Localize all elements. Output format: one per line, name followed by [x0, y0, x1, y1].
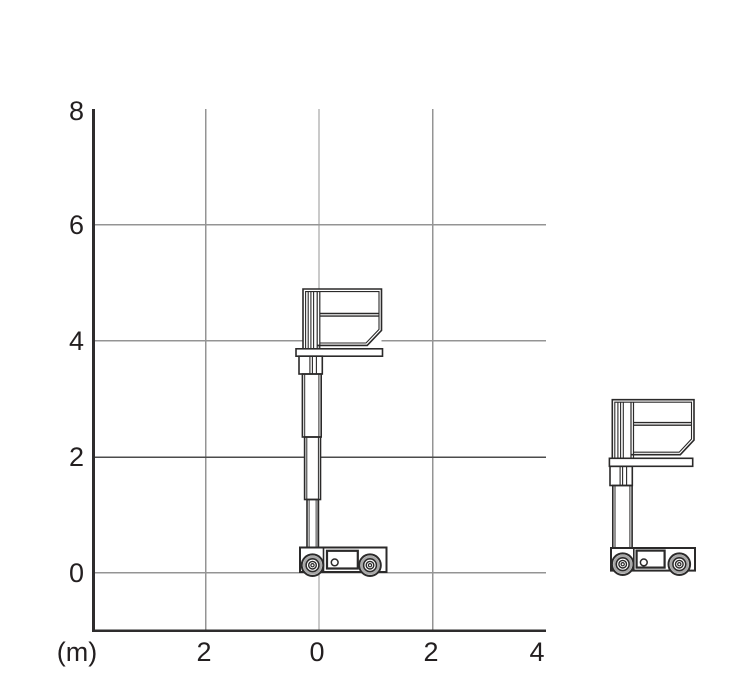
y-tick-8: 8 [44, 94, 84, 128]
diagram-artwork [0, 0, 736, 684]
diagram-canvas: 8 6 4 2 0 (m) 2 0 2 4 [0, 0, 736, 684]
x-tick-0: 0 [285, 635, 349, 669]
lift-extended-drawing [296, 289, 387, 576]
x-tick-2: 2 [399, 635, 463, 669]
y-tick-2: 2 [44, 440, 84, 474]
wheel-icon [612, 553, 634, 575]
y-tick-6: 6 [44, 208, 84, 242]
x-axis-unit-label: (m) [45, 635, 109, 669]
x-tick-4: 4 [505, 635, 569, 669]
lift-stowed-drawing [609, 400, 695, 575]
y-tick-4: 4 [44, 324, 84, 358]
wheel-icon [669, 553, 691, 575]
x-tick-minus2: 2 [172, 635, 236, 669]
wheel-icon [359, 554, 381, 576]
y-tick-0: 0 [44, 556, 84, 590]
wheel-icon [302, 554, 324, 576]
